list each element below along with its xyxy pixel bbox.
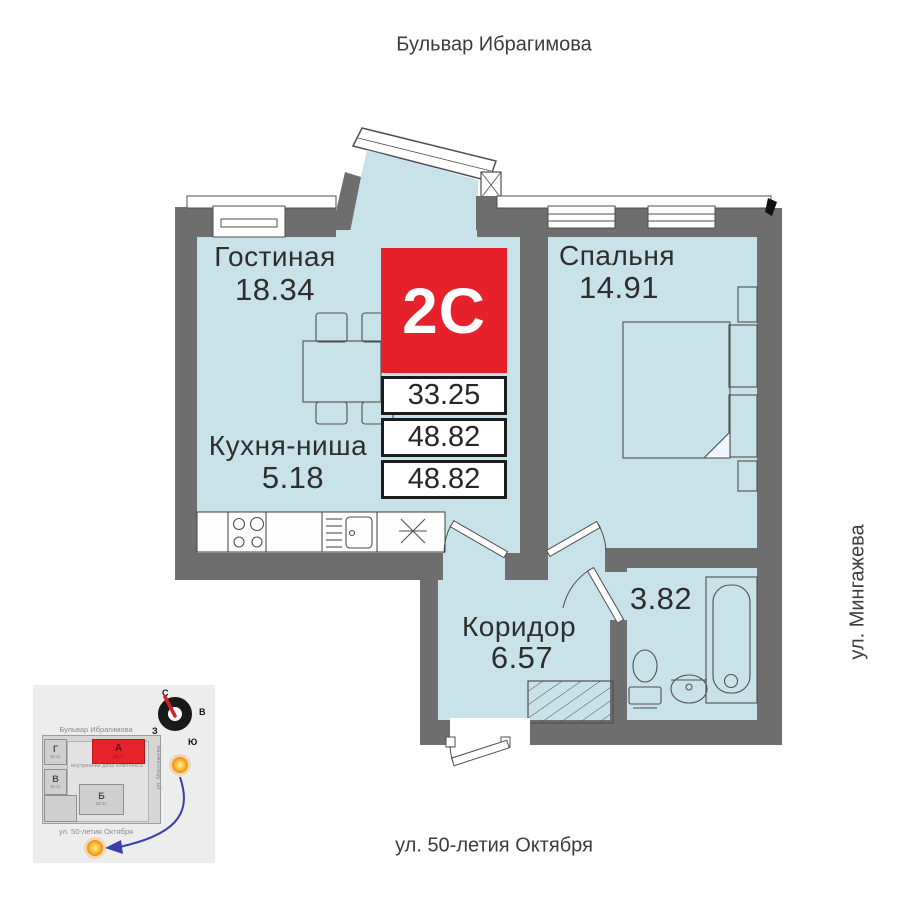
sun-west-icon <box>84 837 106 859</box>
minimap-building-b: Б 20 эт. <box>79 784 124 815</box>
floorplan-page: Бульвар Ибрагимова ул. Мингажева ул. 50-… <box>0 0 900 900</box>
street-label-bottom: ул. 50-летия Октября <box>395 835 593 858</box>
minimap-building-a-highlighted: А 33 эт. <box>92 739 145 764</box>
kitchen-counter <box>197 512 445 552</box>
room-label-kitchen: Кухня-ниша <box>209 430 367 462</box>
room-area-living: 18.34 <box>235 272 315 308</box>
wardrobe-hatch <box>528 681 613 723</box>
room-label-corridor: Коридор <box>462 611 576 643</box>
minimap-street-bottom: ул. 50-летия Октября <box>41 827 151 836</box>
minimap-building-v: В 15 эт. <box>44 769 67 795</box>
room-area-corridor: 6.57 <box>491 640 553 676</box>
room-area-kitchen: 5.18 <box>262 460 324 496</box>
room-label-living: Гостиная <box>214 241 336 273</box>
minimap-street-right: ул. Мингажева <box>156 737 163 799</box>
area-row-3: 48.82 <box>381 460 507 499</box>
minimap-courtyard-label: внутренний двор комплекса <box>69 763 145 770</box>
area-row-total: 33.25 <box>381 376 507 415</box>
street-label-top: Бульвар Ибрагимова <box>396 34 591 57</box>
area-row-2: 48.82 <box>381 418 507 457</box>
minimap-building-annex <box>44 795 77 822</box>
minimap-building-g: Г 15 эт. <box>44 739 67 765</box>
room-area-bedroom: 14.91 <box>579 270 659 306</box>
apartment-type-label: 2С <box>381 248 507 373</box>
sun-east-icon <box>169 754 191 776</box>
compass-icon <box>163 697 187 726</box>
minimap-street-top: Бульвар Ибрагимова <box>41 725 151 734</box>
compass-north-label: С <box>162 688 169 698</box>
room-label-bedroom: Спальня <box>559 240 675 272</box>
entrance-door <box>446 718 530 766</box>
compass-east-label: В <box>199 707 206 717</box>
location-minimap: Г 15 эт. В 15 эт. А 33 эт. Б 20 эт. внут… <box>33 685 215 863</box>
street-label-right: ул. Мингажева <box>847 524 870 659</box>
apartment-badge: 2С 33.25 48.82 48.82 <box>381 248 507 499</box>
compass-south-label: Ю <box>188 737 197 747</box>
compass-west-label: З <box>152 726 158 736</box>
room-area-bathroom: 3.82 <box>630 581 692 617</box>
